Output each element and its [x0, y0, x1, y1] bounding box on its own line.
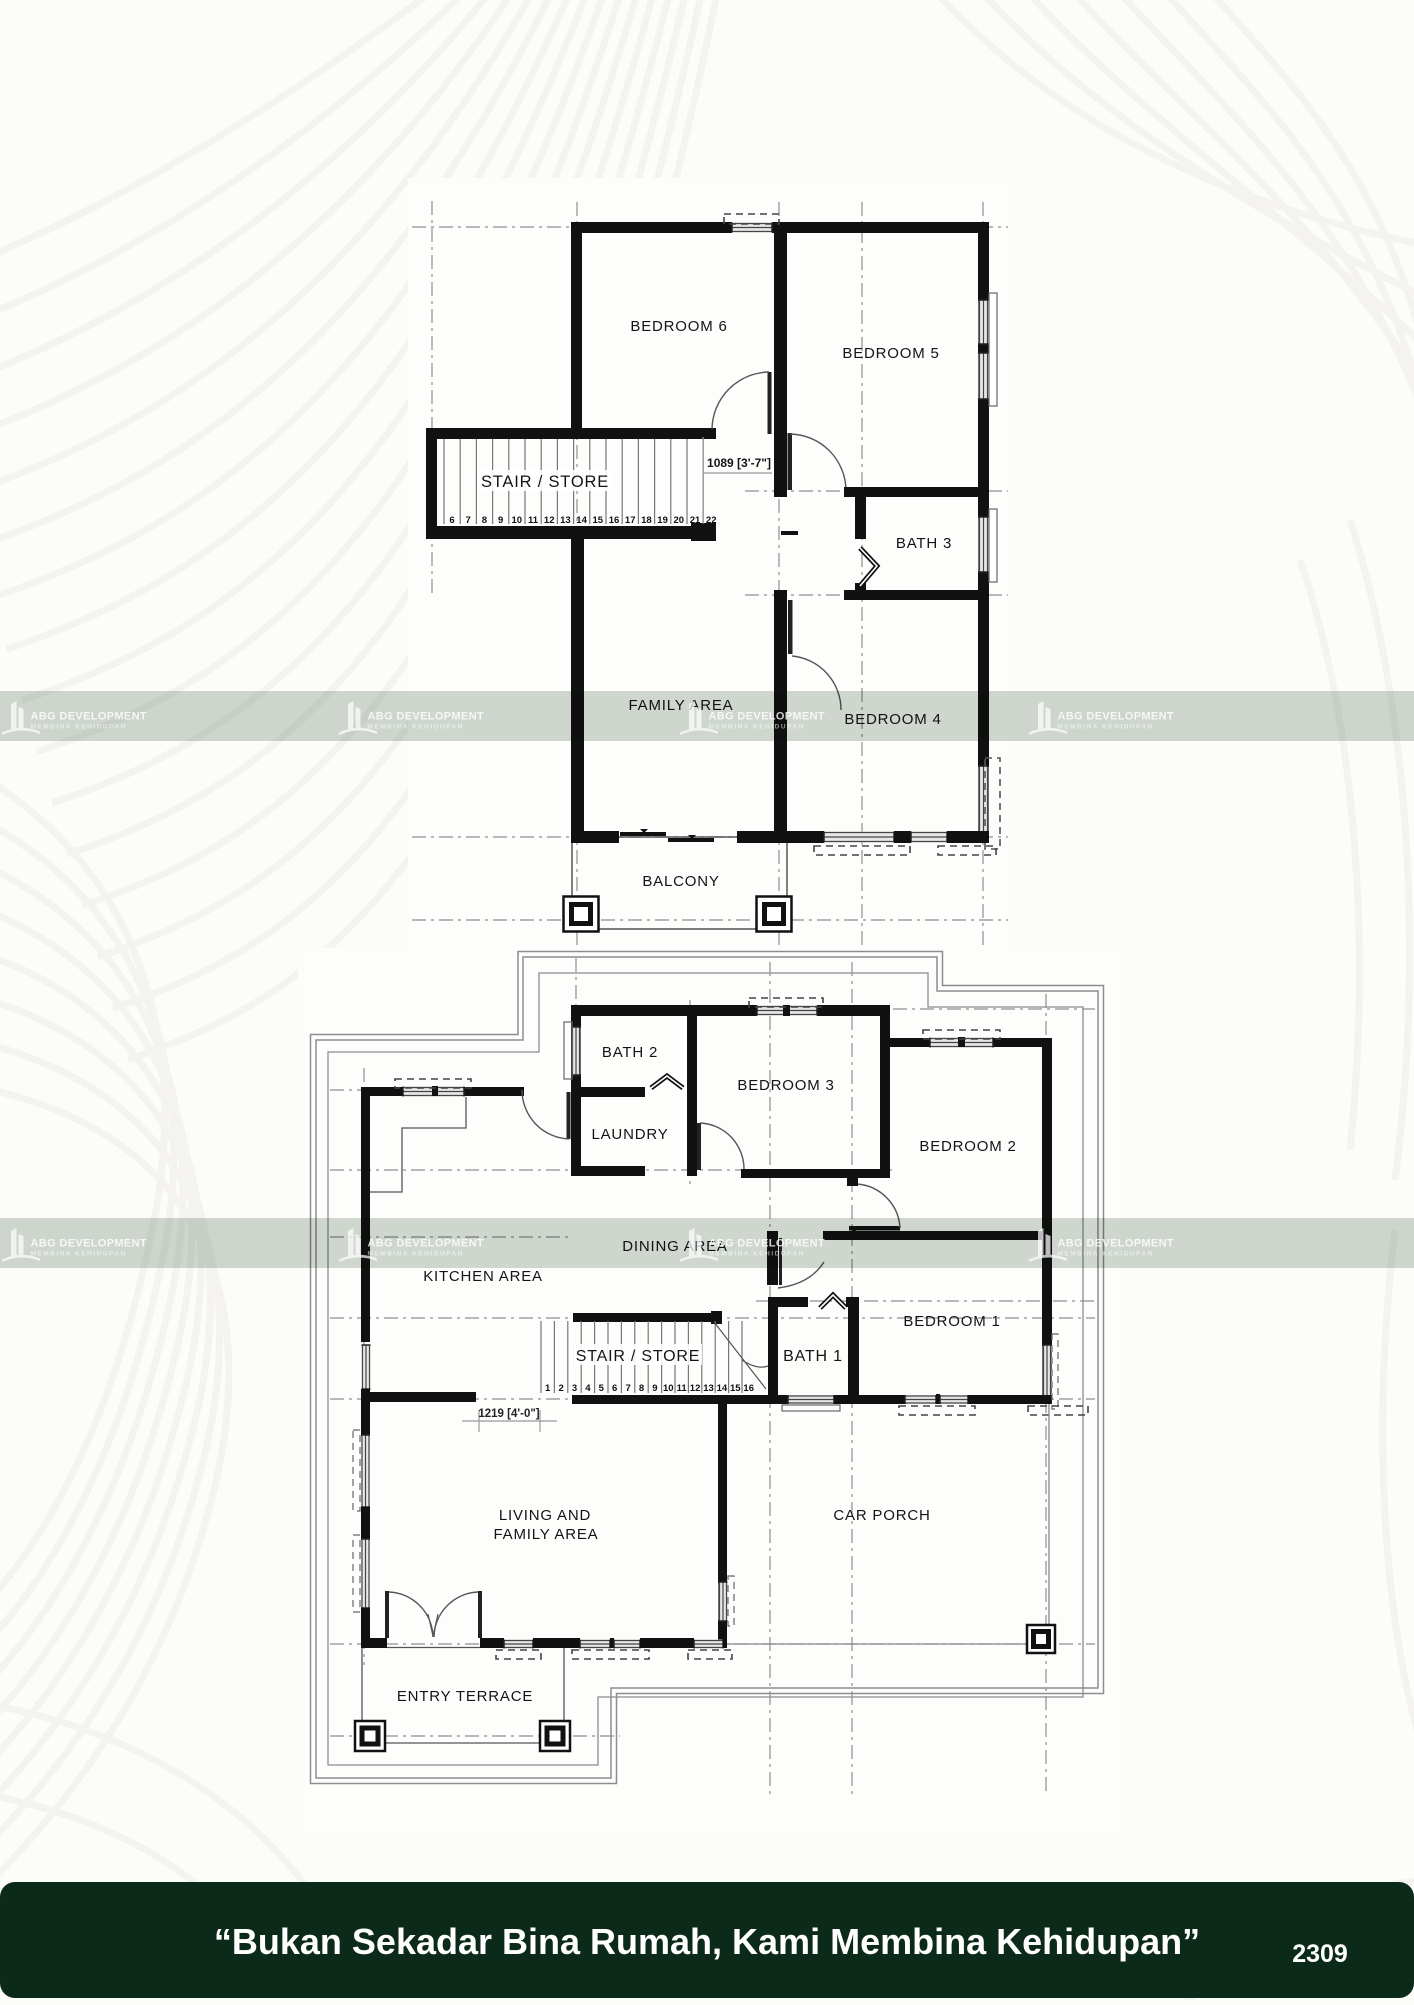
- svg-text:MEMBINA KEHIDUPAN: MEMBINA KEHIDUPAN: [368, 1251, 464, 1258]
- svg-text:13: 13: [560, 515, 571, 526]
- svg-text:ABG DEVELOPMENT: ABG DEVELOPMENT: [368, 1238, 484, 1250]
- svg-text:BALCONY: BALCONY: [642, 873, 719, 890]
- svg-text:MEMBINA KEHIDUPAN: MEMBINA KEHIDUPAN: [1058, 1251, 1154, 1258]
- svg-text:ABG DEVELOPMENT: ABG DEVELOPMENT: [31, 1238, 147, 1250]
- svg-text:BATH 2: BATH 2: [602, 1044, 658, 1061]
- svg-text:BATH 3: BATH 3: [896, 535, 952, 552]
- svg-text:3: 3: [572, 1383, 577, 1394]
- svg-text:8: 8: [639, 1383, 644, 1394]
- svg-text:14: 14: [576, 515, 587, 526]
- svg-text:19: 19: [657, 515, 668, 526]
- svg-text:1089 [3'-7"]: 1089 [3'-7"]: [707, 456, 771, 470]
- svg-text:16: 16: [609, 515, 620, 526]
- svg-text:20: 20: [674, 515, 685, 526]
- svg-text:11: 11: [677, 1383, 688, 1394]
- svg-text:8: 8: [482, 515, 487, 526]
- svg-text:ABG DEVELOPMENT: ABG DEVELOPMENT: [709, 711, 825, 723]
- svg-text:6: 6: [449, 515, 454, 526]
- svg-text:9: 9: [498, 515, 503, 526]
- svg-text:22: 22: [706, 515, 717, 526]
- svg-text:MEMBINA KEHIDUPAN: MEMBINA KEHIDUPAN: [31, 1251, 127, 1258]
- svg-text:CAR PORCH: CAR PORCH: [833, 1507, 930, 1524]
- svg-text:9: 9: [652, 1383, 657, 1394]
- svg-text:21: 21: [690, 515, 701, 526]
- svg-text:7: 7: [625, 1383, 630, 1394]
- svg-text:MEMBINA KEHIDUPAN: MEMBINA KEHIDUPAN: [368, 724, 464, 731]
- svg-text:BATH 1: BATH 1: [783, 1348, 843, 1365]
- svg-text:ABG DEVELOPMENT: ABG DEVELOPMENT: [709, 1238, 825, 1250]
- svg-text:ABG DEVELOPMENT: ABG DEVELOPMENT: [1058, 711, 1174, 723]
- svg-text:10: 10: [512, 515, 523, 526]
- svg-text:13: 13: [703, 1383, 714, 1394]
- svg-text:15: 15: [730, 1383, 741, 1394]
- svg-text:6: 6: [612, 1383, 617, 1394]
- svg-text:4: 4: [585, 1383, 591, 1394]
- svg-text:1: 1: [545, 1383, 551, 1394]
- svg-text:ENTRY TERRACE: ENTRY TERRACE: [397, 1688, 533, 1705]
- svg-text:1219 [4'-0"]: 1219 [4'-0"]: [478, 1408, 539, 1420]
- svg-text:BEDROOM 1: BEDROOM 1: [903, 1313, 1000, 1330]
- svg-text:12: 12: [544, 515, 555, 526]
- svg-text:STAIR / STORE: STAIR / STORE: [481, 473, 609, 491]
- svg-text:MEMBINA KEHIDUPAN: MEMBINA KEHIDUPAN: [1058, 724, 1154, 731]
- svg-text:14: 14: [717, 1383, 728, 1394]
- svg-text:LAUNDRY: LAUNDRY: [591, 1126, 668, 1143]
- svg-text:LIVING AND: LIVING AND: [499, 1507, 591, 1524]
- svg-text:ABG DEVELOPMENT: ABG DEVELOPMENT: [31, 711, 147, 723]
- svg-text:MEMBINA KEHIDUPAN: MEMBINA KEHIDUPAN: [31, 724, 127, 731]
- svg-text:15: 15: [593, 515, 604, 526]
- svg-text:18: 18: [641, 515, 652, 526]
- svg-text:5: 5: [599, 1383, 605, 1394]
- svg-text:12: 12: [690, 1383, 701, 1394]
- svg-text:17: 17: [625, 515, 636, 526]
- svg-text:STAIR / STORE: STAIR / STORE: [576, 1348, 701, 1365]
- svg-text:2309: 2309: [1292, 1940, 1348, 1968]
- svg-text:ABG DEVELOPMENT: ABG DEVELOPMENT: [1058, 1238, 1174, 1250]
- svg-text:2: 2: [558, 1383, 563, 1394]
- svg-text:16: 16: [743, 1383, 754, 1394]
- svg-text:MEMBINA KEHIDUPAN: MEMBINA KEHIDUPAN: [709, 1251, 805, 1258]
- svg-text:FAMILY AREA: FAMILY AREA: [494, 1526, 599, 1543]
- svg-text:BEDROOM 6: BEDROOM 6: [630, 318, 727, 335]
- svg-text:ABG DEVELOPMENT: ABG DEVELOPMENT: [368, 711, 484, 723]
- svg-text:11: 11: [528, 515, 539, 526]
- svg-text:10: 10: [663, 1383, 674, 1394]
- svg-text:MEMBINA KEHIDUPAN: MEMBINA KEHIDUPAN: [709, 724, 805, 731]
- svg-text:“Bukan Sekadar Bina Rumah, Kam: “Bukan Sekadar Bina Rumah, Kami Membina …: [214, 1921, 1200, 1962]
- svg-text:BEDROOM 2: BEDROOM 2: [919, 1138, 1016, 1155]
- svg-text:7: 7: [466, 515, 471, 526]
- svg-text:KITCHEN AREA: KITCHEN AREA: [423, 1268, 543, 1285]
- svg-text:BEDROOM 5: BEDROOM 5: [842, 345, 939, 362]
- svg-text:BEDROOM 3: BEDROOM 3: [737, 1077, 834, 1094]
